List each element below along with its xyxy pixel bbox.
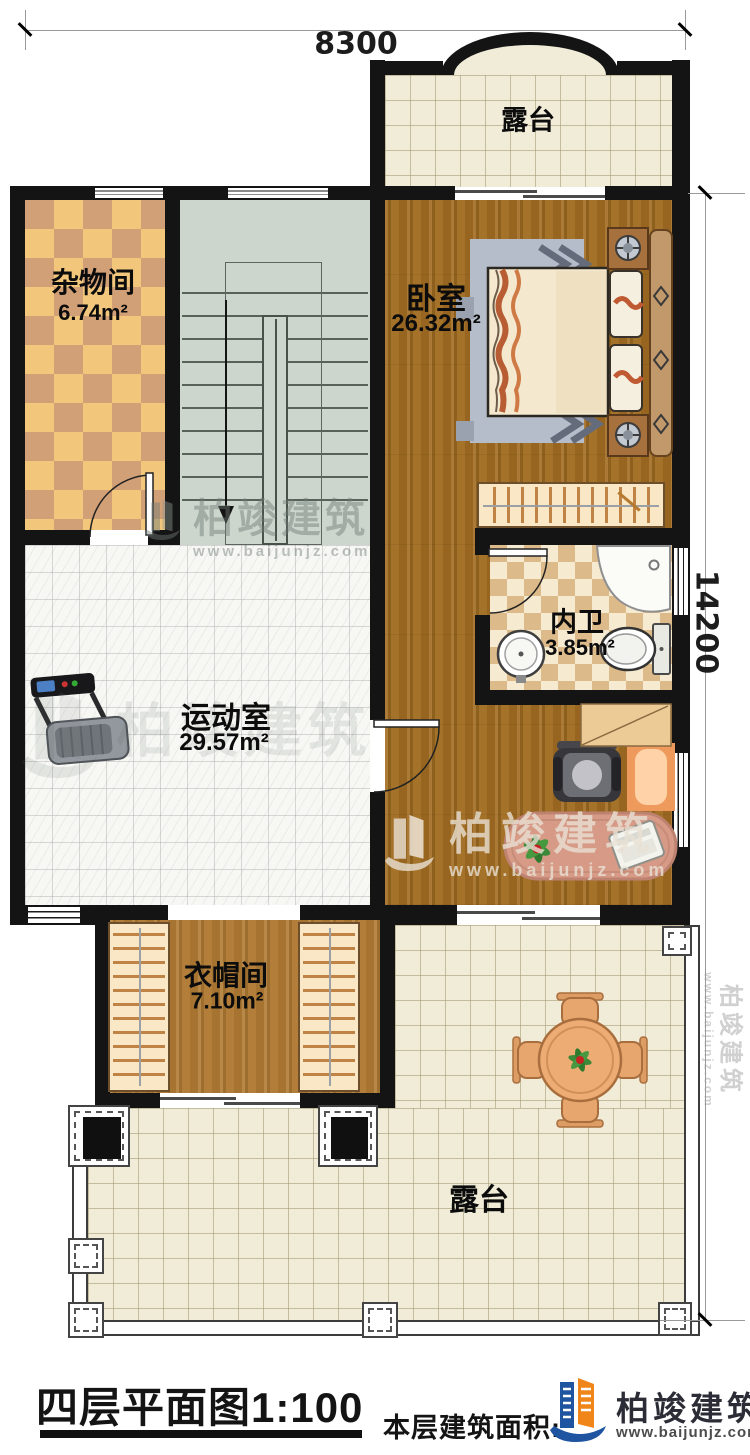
office-chair [553,741,621,802]
bed [456,225,676,460]
cloak-wardrobe-right [298,922,360,1092]
stair-handrail [262,315,288,545]
wall-spine-upper [370,60,385,720]
wall-hall-bottom-b [600,905,690,925]
wall-storage-stair-divider [165,186,180,545]
brand-url: www.baijunjz.com [616,1424,750,1441]
round-table-set [502,982,658,1138]
wall-hall-bottom-a [395,905,457,925]
bathroom-label: 内卫 [550,601,604,640]
terrace-arch-wall [441,32,619,75]
window [672,548,690,615]
column [331,1117,368,1159]
window [95,186,163,200]
dimension-top-value: 8300 [314,27,398,62]
plan-title: 四层平面图1:100 [36,1374,363,1435]
corner-shelf [580,703,672,747]
gym-area: 29.57m² [179,729,268,757]
floor-area-note: 本层建筑面积: [383,1406,561,1445]
window [28,905,80,925]
watermark-url: www.baijunjz.com [702,972,716,1108]
wall-gym-bottom-a [10,905,28,925]
window [228,186,328,200]
floor-plan: 柏竣建筑 www.baijunjz.com 柏竣建筑 柏竣建筑 www.baij… [0,0,750,1455]
wall-terrace-bottom-left [370,186,455,200]
watermark: 柏竣建筑 www.baijunjz.com [702,972,750,1108]
wall-cloak-top-stub-right [300,905,380,920]
bathroom-area: 3.85m² [545,635,615,661]
title-underline [40,1430,362,1438]
railing-post [68,1238,104,1274]
railing-post [362,1302,398,1338]
cloakroom-area: 7.10m² [191,988,264,1015]
storage-room-label: 杂物间 [51,261,135,301]
storage-room-area: 6.74m² [58,300,128,326]
dimension-line-right [705,193,706,1321]
wall-bath-left-upper [475,545,490,555]
dimension-right-value: 14200 [689,570,724,674]
terrace-top-label: 露台 [501,99,555,138]
dimension-extension [660,1320,745,1321]
sliding-door [160,1095,300,1107]
shower [594,543,674,618]
wall-storage-bottom-stub [148,530,180,545]
railing-post [68,1302,104,1338]
dimension-extension [688,193,745,194]
terrace-bottom-label: 露台 [449,1175,509,1219]
column [83,1117,121,1159]
terrace-bottom-floor-main [88,1108,684,1320]
railing-post [662,926,692,956]
desk-area [503,733,678,883]
stair-direction-arrow [218,506,234,524]
brand-logo-icon [550,1376,614,1444]
sliding-door [457,907,600,923]
wall-arch-left [385,61,443,75]
cloak-wardrobe-left [108,922,170,1092]
wall-spine-lower [370,792,385,915]
wall-left [10,186,25,925]
wall-terrace-right [672,60,690,195]
sliding-door [455,187,605,200]
sink [494,628,552,684]
storage-floor [25,200,165,530]
watermark-name: 柏竣建筑 [716,972,750,1108]
railing-right [684,925,700,1336]
brand-name: 柏竣建筑 [616,1382,750,1430]
stair-direction-line [225,300,227,508]
bedroom-wardrobe [477,482,665,528]
wall-cloak-top-stub-left [110,905,168,920]
bedroom-area: 26.32m² [391,310,480,338]
wall-storage-bottom [10,530,90,545]
wall-cloak-right [380,905,395,1108]
railing-post [658,1302,692,1336]
treadmill [30,666,130,776]
